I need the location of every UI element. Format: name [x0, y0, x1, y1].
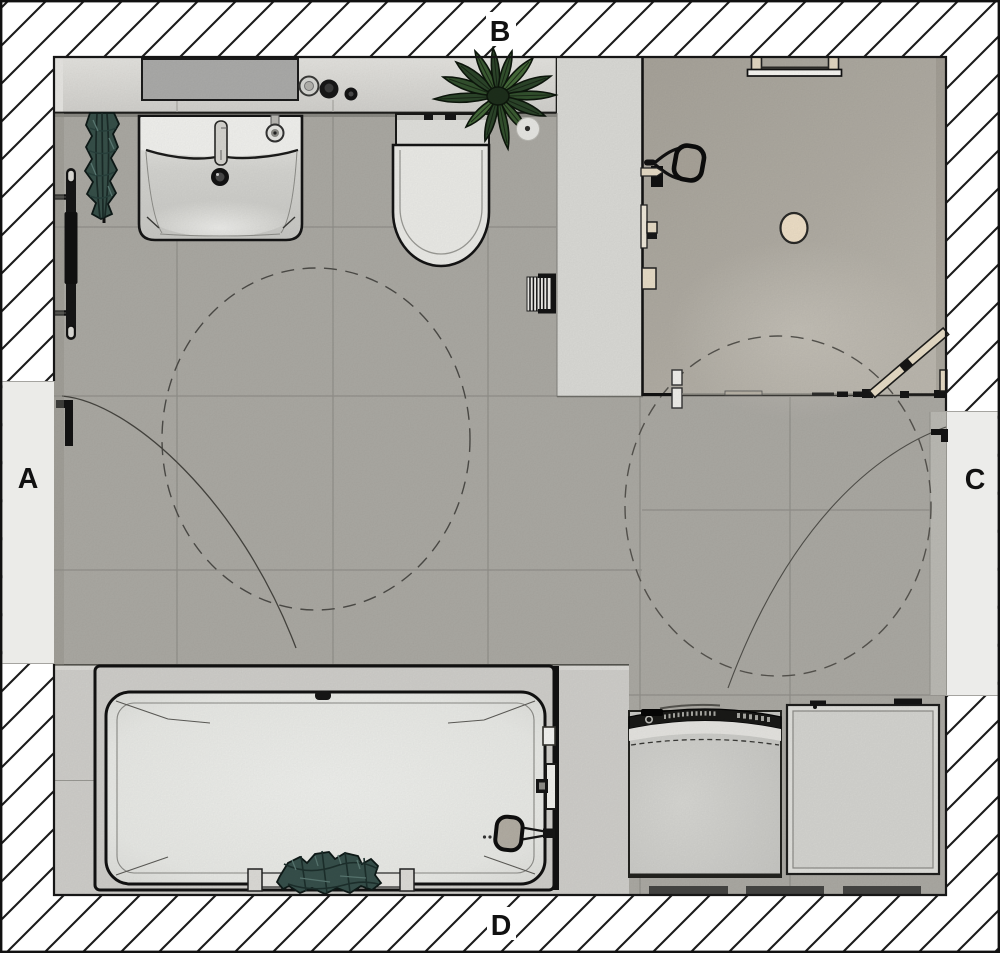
svg-text:D: D [491, 910, 512, 942]
svg-text:C: C [965, 464, 986, 496]
svg-text:B: B [490, 16, 511, 48]
svg-text:A: A [18, 463, 39, 495]
